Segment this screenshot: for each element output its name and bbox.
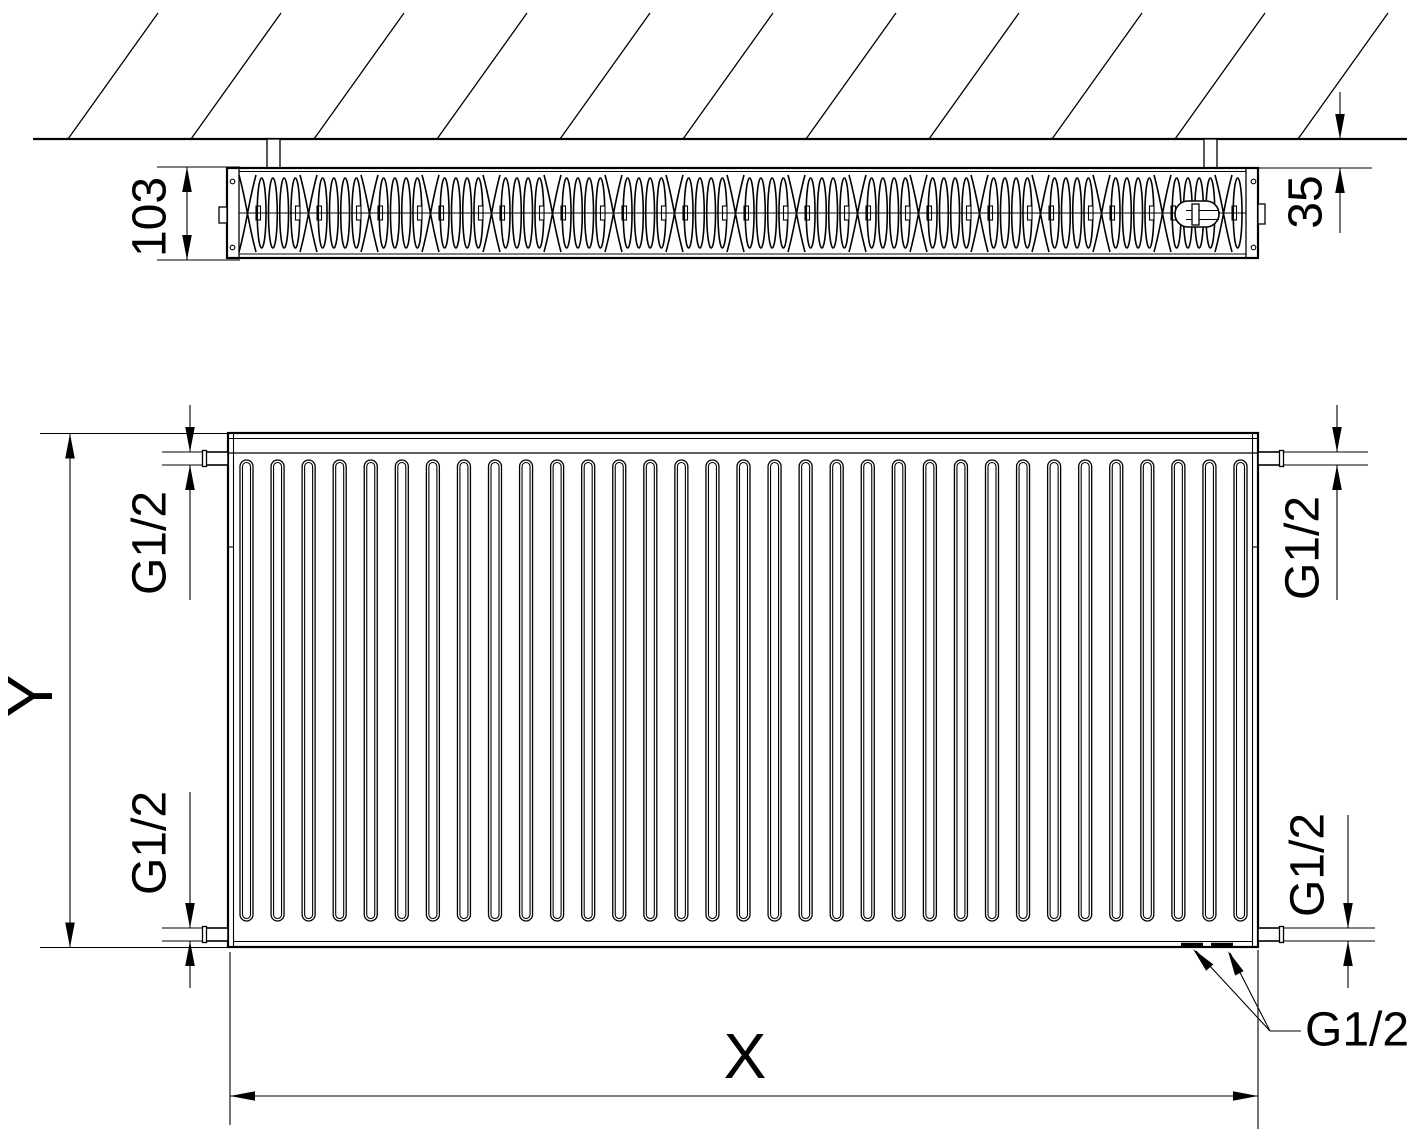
dim-label-wall-distance: 35 <box>1280 175 1333 228</box>
wall-hatch-line <box>683 13 773 139</box>
pipe-stub-flange <box>203 927 207 943</box>
dim-arrowhead <box>185 465 195 490</box>
conn-label-bottom-right: G1/2 <box>1282 813 1335 917</box>
conn-label-top-right: G1/2 <box>1277 496 1330 600</box>
dim-arrowhead <box>185 427 195 452</box>
wall-bracket-right <box>1204 139 1217 171</box>
drawing-svg: 103 35 Y X G1/2 G1/2 G1/2 G1/2 G1/2 <box>0 0 1425 1131</box>
wall-hatch-line <box>68 13 158 139</box>
radiator-technical-drawing: 103 35 Y X G1/2 G1/2 G1/2 G1/2 G1/2 <box>0 0 1425 1131</box>
dim-arrowhead <box>185 941 195 966</box>
pipe-stub-bottom-right <box>1258 928 1280 941</box>
wall-hatch-line <box>437 13 527 139</box>
wall-bracket-left <box>267 139 280 171</box>
dim-arrowhead <box>230 1091 255 1101</box>
drawing-geometry <box>33 13 1407 1129</box>
dim-arrowhead <box>185 903 195 928</box>
end-plate-tab-right <box>1258 204 1265 224</box>
wall-hatch-line <box>806 13 896 139</box>
dim-arrowhead <box>1332 427 1342 452</box>
dim-arrowhead <box>1335 114 1345 139</box>
dim-arrowhead <box>182 235 192 260</box>
conn-label-bottom-callout: G1/2 <box>1305 1004 1409 1057</box>
wall-hatch-line <box>314 13 404 139</box>
end-plate-tab-left <box>219 207 227 223</box>
dim-arrowhead <box>65 923 75 948</box>
wall-hatch-line <box>1175 13 1265 139</box>
pipe-stub-flange <box>1280 451 1284 467</box>
dim-arrowhead <box>1233 1091 1258 1101</box>
conn-label-top-left: G1/2 <box>124 491 177 595</box>
dim-arrowhead <box>1224 949 1244 976</box>
pipe-stub-top-left <box>206 452 228 465</box>
dim-label-height-y: Y <box>0 675 66 718</box>
dim-arrowhead <box>1189 946 1213 971</box>
dim-arrowhead <box>1343 941 1353 966</box>
dim-label-depth: 103 <box>124 177 177 257</box>
valve-detail-bar <box>1192 204 1199 225</box>
radiator-front-panel <box>228 433 1258 947</box>
dim-label-width-x: X <box>724 1020 767 1092</box>
wall-hatch-line <box>560 13 650 139</box>
pipe-stub-flange <box>203 451 207 467</box>
dim-arrowhead <box>65 434 75 459</box>
dim-arrowhead <box>1335 168 1345 193</box>
pipe-stub-bottom-left <box>206 928 228 941</box>
wall-hatch-line <box>191 13 281 139</box>
pipe-stub-top-right <box>1258 452 1280 465</box>
pipe-stub-flange <box>1280 927 1284 943</box>
dim-arrowhead <box>1343 903 1353 928</box>
wall-hatch-line <box>929 13 1019 139</box>
wall-hatch-line <box>1052 13 1142 139</box>
conn-label-bottom-left: G1/2 <box>124 791 177 895</box>
dim-arrowhead <box>1332 465 1342 490</box>
dim-arrowhead <box>182 167 192 192</box>
